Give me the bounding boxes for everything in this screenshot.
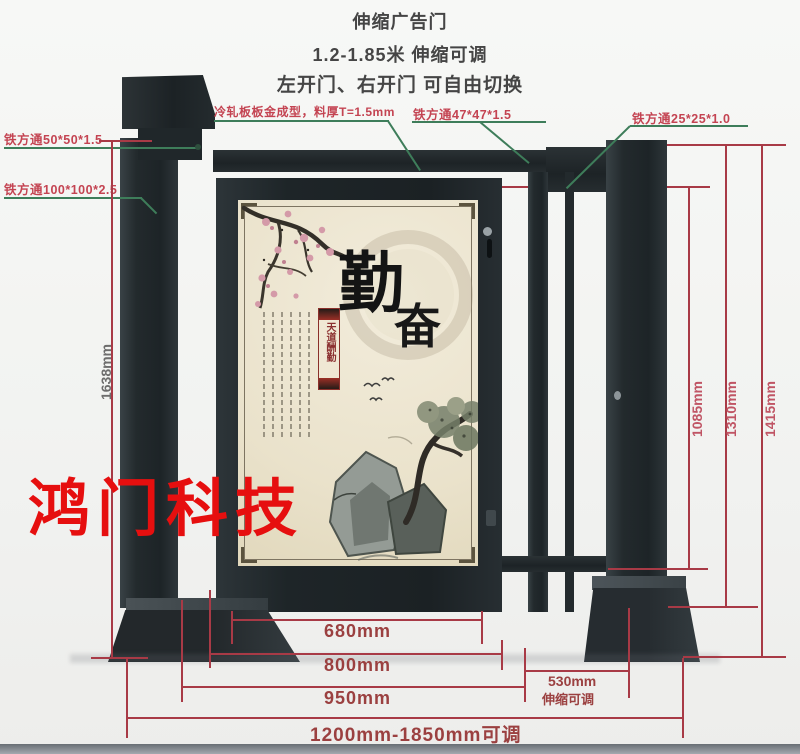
right-post-base: [584, 588, 700, 662]
left-post-base-cap: [126, 598, 268, 612]
top-rail: [213, 150, 548, 172]
dim-label-680: 680mm: [324, 621, 391, 642]
dim-tick-1310-bottom: [668, 606, 758, 608]
dim-label-1310: 1310mm: [723, 369, 739, 449]
callout-square-tube-50: 铁方通50*50*1.5: [4, 129, 102, 148]
dim-tick-1638-bottom: [91, 657, 148, 659]
seal-banner-top-cap: [319, 309, 339, 320]
dim-tick-950-left: [181, 600, 183, 702]
dim-tick-range-left: [126, 658, 128, 738]
dim-line-range: [127, 717, 683, 719]
dim-tick-1415-bottom: [683, 656, 786, 658]
retract-picket-2: [565, 172, 574, 612]
dim-label-1085: 1085mm: [689, 369, 705, 449]
dim-label-1415: 1415mm: [762, 369, 778, 449]
product-title: 伸缩广告门: [0, 8, 800, 34]
dim-tick-950-530: [524, 648, 526, 702]
callout-cold-rolled-panel: 冷轧板板金成型，料厚T=1.5mm: [214, 103, 395, 120]
poster-seal-text: 天道酬勤: [323, 322, 335, 362]
retract-picket-1: [528, 172, 548, 612]
ground-shadow: [70, 654, 720, 663]
dim-label-950: 950mm: [324, 688, 391, 709]
dim-tick-1638-top: [99, 140, 152, 142]
watermark: 鸿门科技: [28, 458, 304, 548]
poster-poem-columns: [263, 312, 317, 440]
right-post-base-cap: [592, 576, 686, 590]
leader-dot: [195, 144, 201, 150]
dim-tick-680-right: [481, 611, 483, 644]
dim-label-range: 1200mm-1850mm可调: [310, 720, 521, 747]
leader-square-tube-25: [630, 125, 748, 127]
seal-banner-bottom-cap: [319, 378, 339, 389]
bottom-strip: [0, 744, 800, 754]
dim-tick-1415-top: [667, 144, 786, 146]
size-range-text: 1.2-1.85米 伸缩可调: [0, 41, 800, 67]
dim-label-530-note: 伸缩可调: [542, 689, 594, 708]
leader-square-tube-100: [4, 197, 142, 199]
dim-tick-530-right: [628, 608, 630, 698]
motor-housing: [122, 75, 215, 129]
product-diagram: 伸缩广告门 1.2-1.85米 伸缩可调 左开门、右开门 可自由切换: [0, 0, 800, 754]
door-switch-note: 左开门、右开门 可自由切换: [0, 70, 800, 97]
dim-label-1638: 1638mm: [98, 332, 114, 412]
dim-tick-800-right: [501, 640, 503, 670]
dim-tick-800-left: [209, 590, 211, 668]
door-lower-hinge: [486, 510, 496, 526]
poster-sub-char: 奋: [394, 288, 441, 357]
motor-housing-neck: [138, 128, 202, 160]
leader-square-tube-50: [4, 147, 198, 149]
door-lock-icon: [483, 227, 492, 236]
dim-tick-680-left: [231, 611, 233, 644]
dim-label-530: 530mm: [548, 673, 596, 689]
leader-cold-rolled-panel: [214, 120, 389, 122]
right-post: [606, 140, 667, 604]
poster-seal-banner: 天道酬勤: [318, 308, 340, 390]
callout-square-tube-100: 铁方通100*100*2.5: [4, 179, 117, 198]
dim-label-800: 800mm: [324, 655, 391, 676]
right-post-keyhole-icon: [614, 391, 621, 400]
dim-tick-1085-bottom: [608, 568, 708, 570]
door-handle: [487, 239, 492, 258]
dim-line-530: [525, 670, 629, 672]
dim-tick-range-right: [682, 658, 684, 738]
